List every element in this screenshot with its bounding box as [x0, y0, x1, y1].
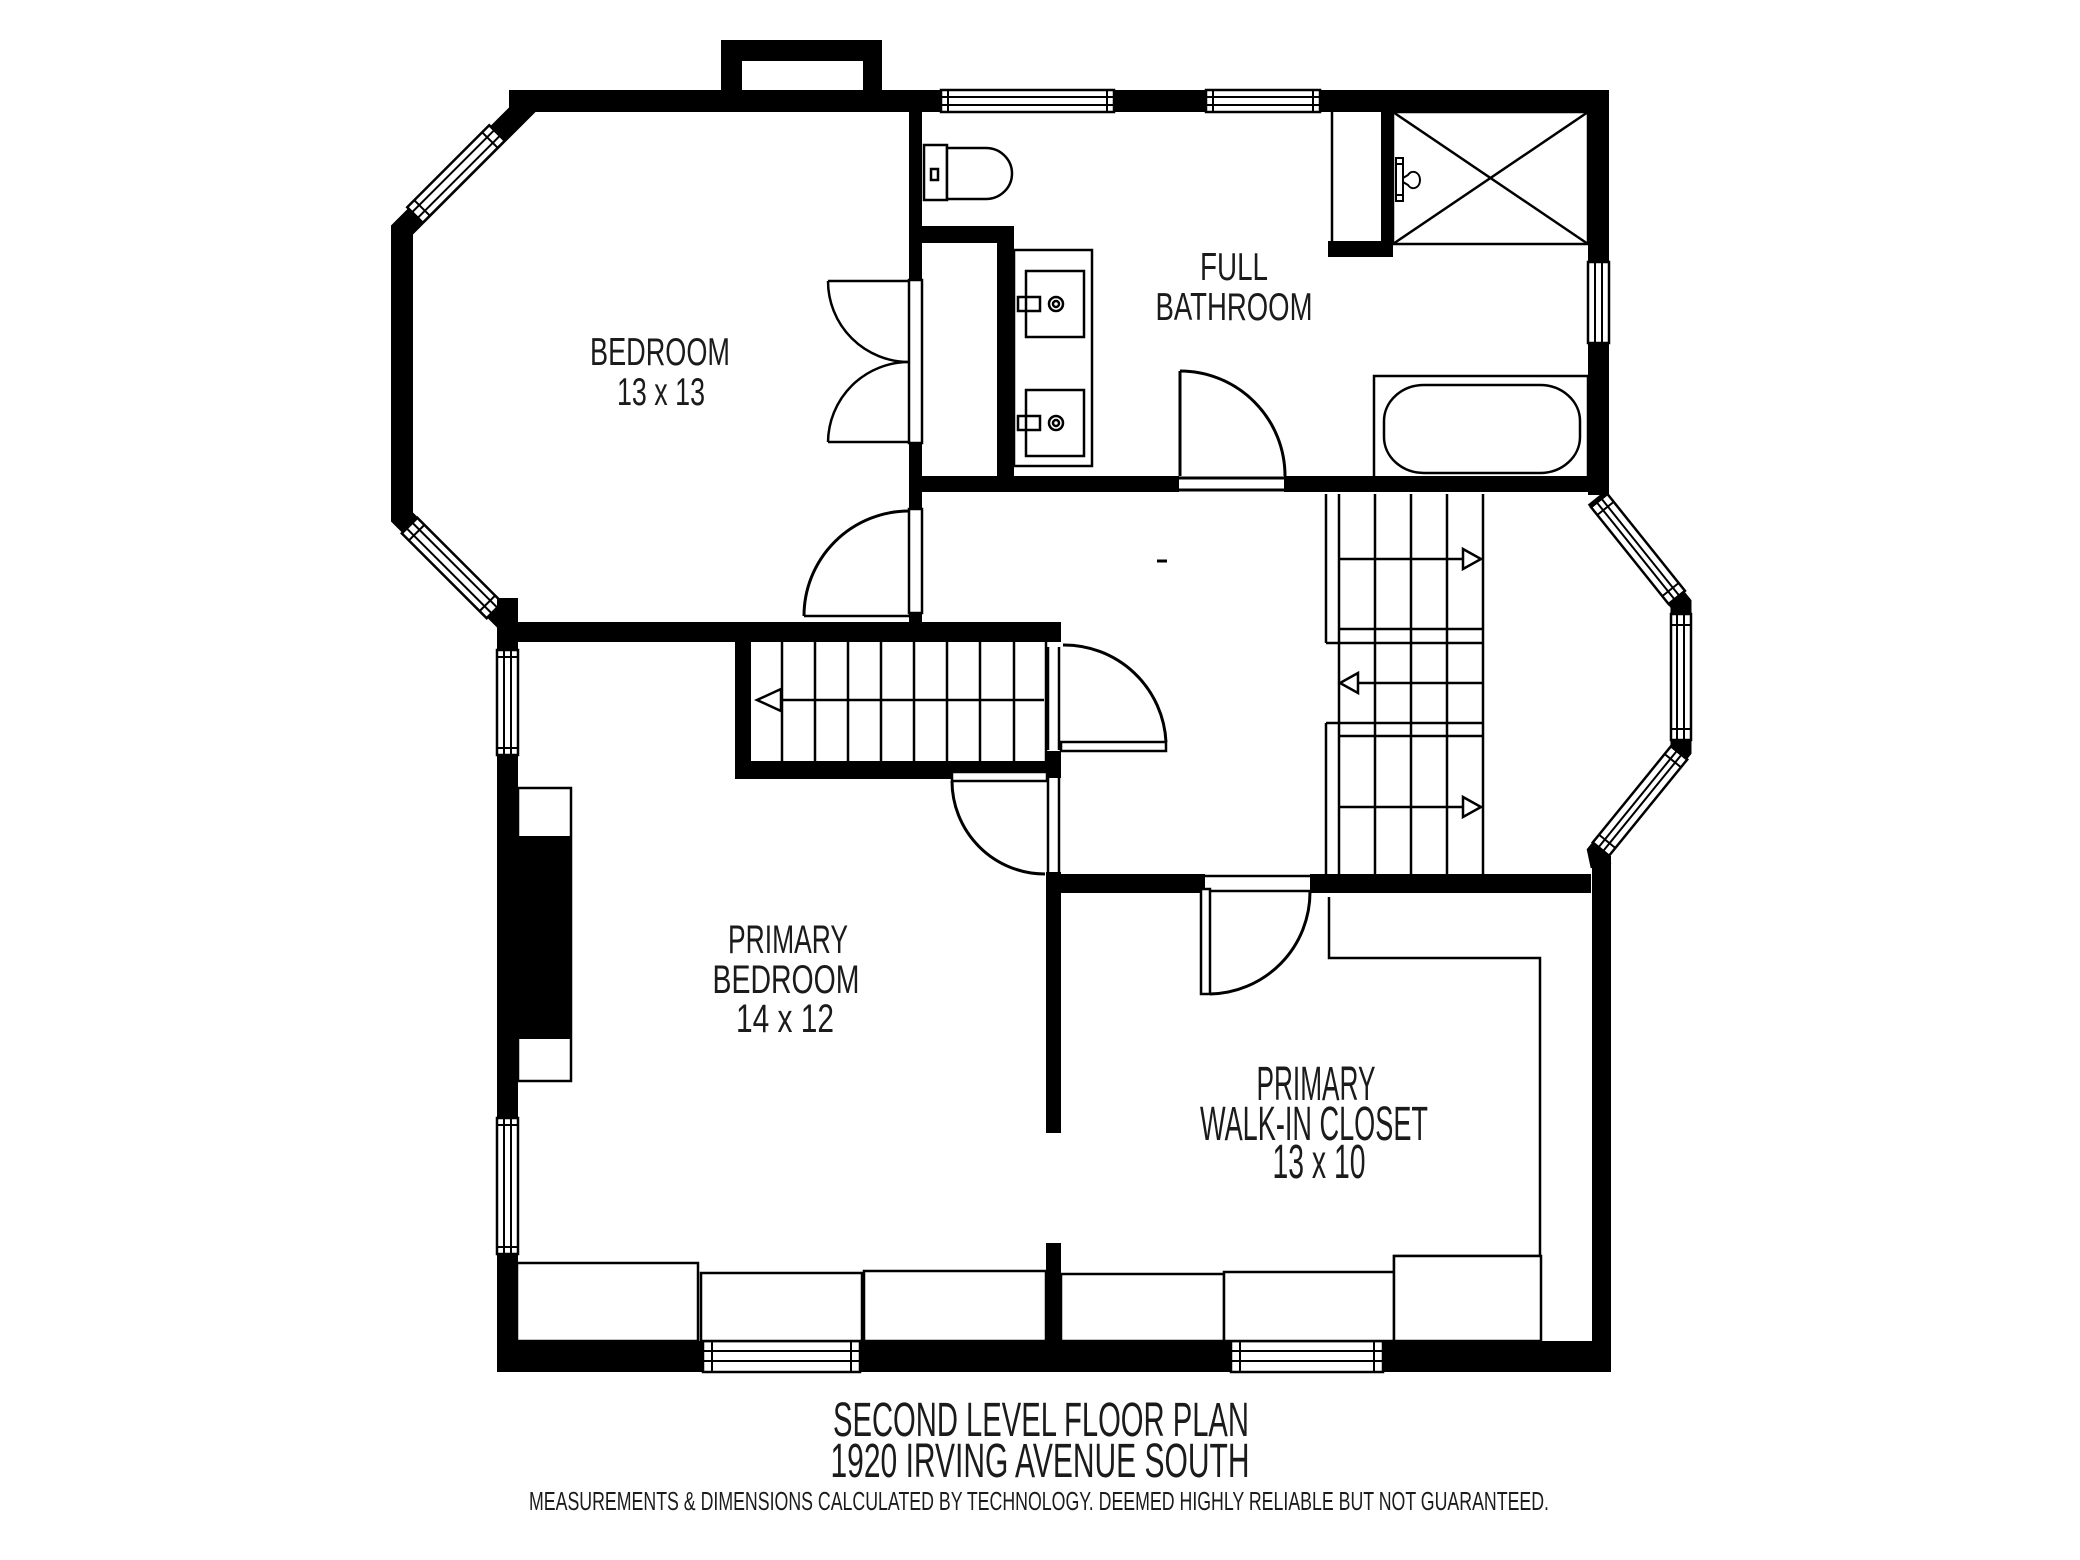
svg-text:1920 IRVING AVENUE SOUTH: 1920 IRVING AVENUE SOUTH [831, 1435, 1250, 1488]
svg-text:14 x 12: 14 x 12 [736, 997, 834, 1041]
svg-text:FULL: FULL [1200, 246, 1268, 289]
svg-text:BATHROOM: BATHROOM [1156, 286, 1313, 329]
svg-text:PRIMARY: PRIMARY [728, 918, 848, 962]
svg-text:13 x 13: 13 x 13 [617, 371, 705, 414]
svg-text:BEDROOM: BEDROOM [590, 331, 730, 374]
svg-text:BEDROOM: BEDROOM [713, 958, 860, 1002]
svg-text:13 x 10: 13 x 10 [1273, 1136, 1366, 1189]
svg-text:MEASUREMENTS & DIMENSIONS CALC: MEASUREMENTS & DIMENSIONS CALCULATED BY … [529, 1486, 1549, 1516]
